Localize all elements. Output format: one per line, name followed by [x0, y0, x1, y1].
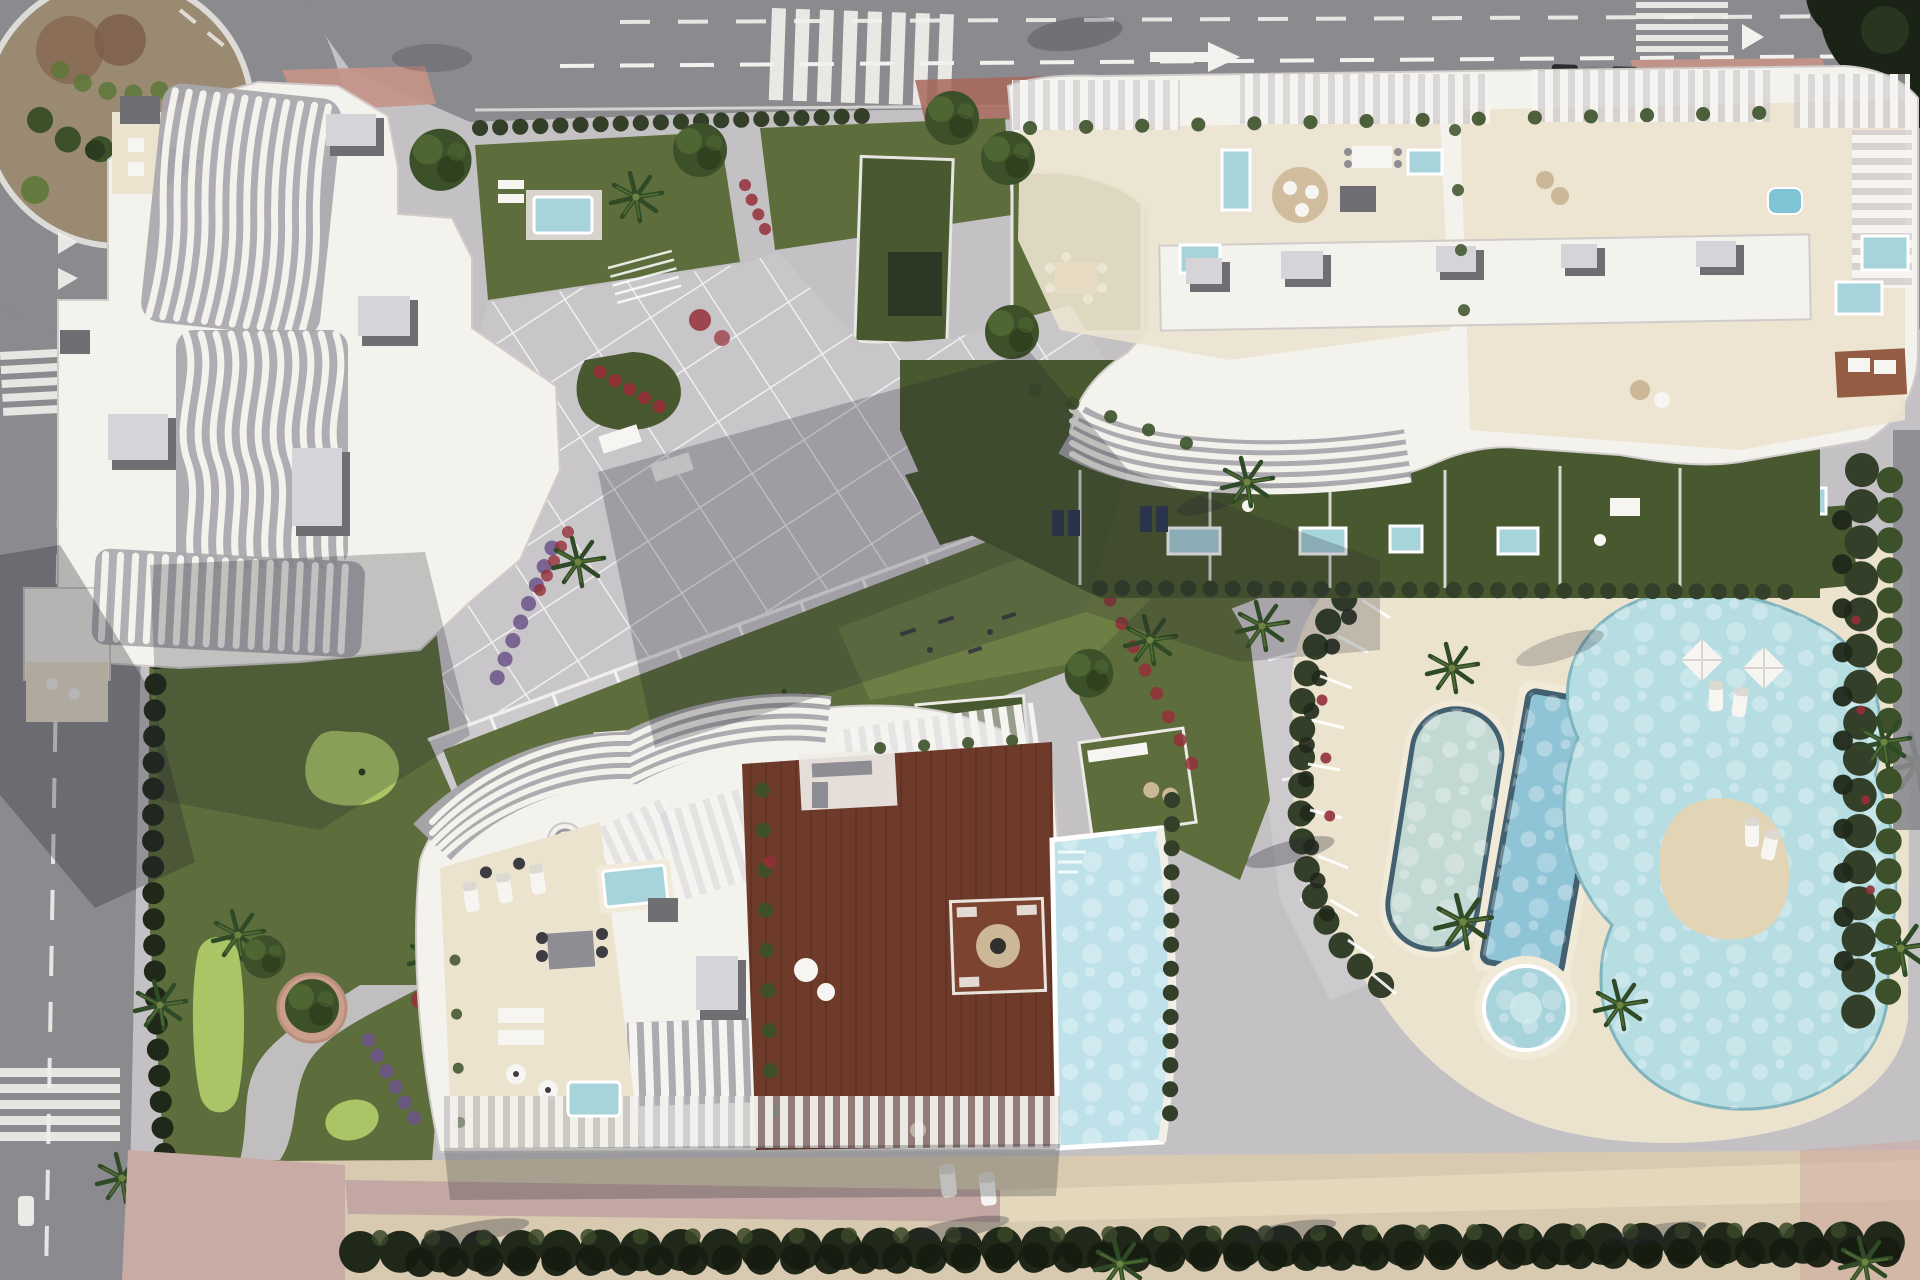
plunge-pool [1390, 526, 1422, 552]
kids-pool [1474, 956, 1578, 1060]
lounger-icon [1709, 681, 1723, 711]
tree-icon [925, 91, 979, 145]
jacuzzi [1768, 188, 1802, 214]
jacuzzi-c [568, 1082, 620, 1116]
rooftop-pool [1052, 828, 1172, 1148]
fire-lounge [950, 898, 1045, 993]
render-canvas [0, 0, 1920, 1280]
plunge-pool [1498, 528, 1538, 554]
tree-icon [985, 305, 1039, 359]
corner-sidewalk [122, 1150, 345, 1280]
aerial-render: Aerial top-down architectural rendering … [0, 0, 1920, 1280]
tree-icon [409, 129, 471, 191]
pool-island [1659, 798, 1789, 939]
parked-car-left [18, 1196, 34, 1226]
garden-shed [888, 252, 942, 316]
private-plot-a [855, 156, 953, 344]
louver-balconies-north [139, 82, 343, 340]
lagoon-pool [1564, 591, 1920, 1109]
garden-pool [534, 197, 592, 233]
lounger-icon [1745, 817, 1759, 847]
dining-table [547, 930, 595, 969]
tree-icon [673, 123, 727, 177]
putting-lane [193, 937, 244, 1112]
tree-icon [1065, 649, 1114, 698]
tree-icon [981, 131, 1035, 185]
